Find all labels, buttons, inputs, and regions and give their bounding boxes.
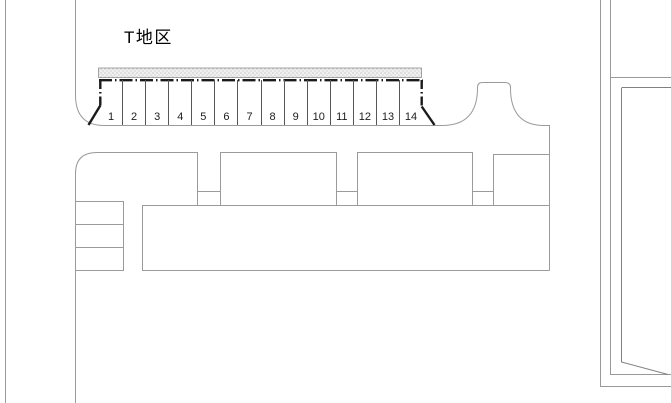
stall-cell-8: 8 — [261, 80, 284, 125]
stall-number: 3 — [154, 112, 160, 123]
parcel-row-2 — [221, 153, 337, 206]
stall-cell-5: 5 — [191, 80, 214, 125]
stall-number: 12 — [359, 112, 371, 123]
stall-cell-1: 1 — [100, 80, 122, 125]
right-lot-inner-boundary — [622, 88, 671, 375]
stall-number: 11 — [336, 112, 347, 123]
hatched-strip — [99, 68, 422, 78]
stall-number: 7 — [246, 112, 252, 123]
parcel-row-1 — [97, 153, 198, 206]
stall-cell-10: 10 — [307, 80, 330, 125]
stall-cell-14: 14 — [399, 80, 422, 125]
stall-row: 1234567891011121314 — [100, 80, 422, 125]
stall-number: 8 — [270, 112, 276, 123]
site-plan-page: { "diagram": { "district_label": "T地区", … — [0, 0, 671, 403]
stall-number: 5 — [200, 112, 206, 123]
parcel-lines — [76, 153, 550, 271]
road-corner-fillet-lower — [76, 153, 98, 403]
stall-cell-2: 2 — [122, 80, 145, 125]
site-plan-drawing — [0, 0, 671, 403]
stall-cell-9: 9 — [284, 80, 307, 125]
parcel-large — [143, 206, 550, 271]
stall-number: 2 — [131, 112, 137, 123]
boundary-chamfer-left — [89, 106, 101, 126]
stall-number: 14 — [405, 112, 417, 123]
stall-cell-3: 3 — [145, 80, 168, 125]
stall-number: 4 — [177, 112, 183, 123]
stall-cell-12: 12 — [353, 80, 376, 125]
stall-number: 1 — [108, 112, 114, 123]
right-block-lines — [601, 0, 671, 387]
stall-cell-6: 6 — [214, 80, 237, 125]
stall-cell-13: 13 — [376, 80, 399, 125]
stall-cell-4: 4 — [168, 80, 191, 125]
district-label: T地区 — [124, 29, 173, 48]
parcel-row-4 — [494, 155, 550, 206]
right-road-outer-line — [601, 0, 671, 387]
stall-number: 6 — [223, 112, 229, 123]
stall-cell-7: 7 — [237, 80, 260, 125]
parcel-small-stack — [76, 202, 124, 271]
right-road-inner-line — [611, 0, 671, 375]
stall-number: 10 — [313, 112, 325, 123]
stall-number: 13 — [382, 112, 394, 123]
stall-number: 9 — [293, 112, 299, 123]
stall-cell-11: 11 — [330, 80, 353, 125]
parcel-row-3 — [358, 153, 473, 206]
boundary-chamfer-right — [422, 107, 435, 126]
